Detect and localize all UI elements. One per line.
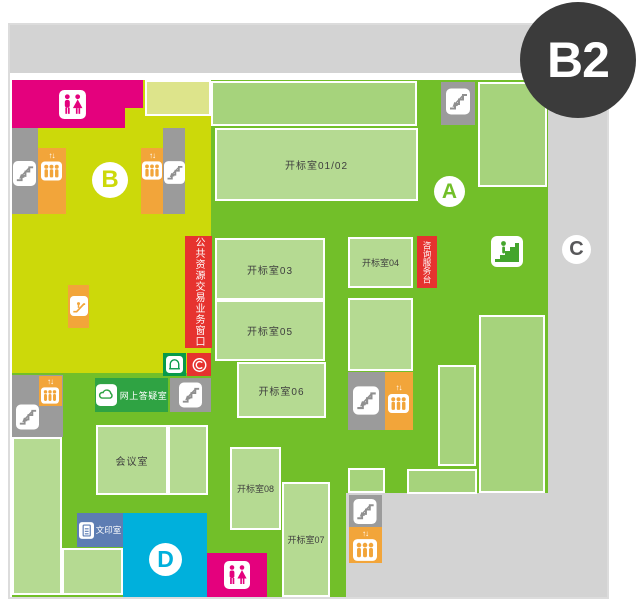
zone-letter: C xyxy=(569,238,583,261)
room-label: 开标室06 xyxy=(258,383,304,398)
elevator-arrows: ↑↓ xyxy=(49,152,55,160)
room-bid-04: 开标室04 xyxy=(348,237,413,288)
zone-marker-a: A xyxy=(434,176,465,207)
room-unlabeled-below-04 xyxy=(348,298,413,371)
zone-marker-d: D xyxy=(149,543,182,576)
kiosk-icon xyxy=(166,356,183,373)
room-unlabeled-below-print xyxy=(62,548,123,595)
elevator-icon: ↑↓ xyxy=(353,530,377,561)
room-unlabeled-top-left xyxy=(145,80,211,116)
room-print: 文印室 xyxy=(77,513,123,547)
info-desk-text: 咨询服务台 xyxy=(421,241,433,284)
online-qa-label: 网上答疑室 xyxy=(120,389,168,402)
room-bid-0102: 开标室01/02 xyxy=(215,128,418,201)
zone-marker-c: C xyxy=(562,235,591,264)
cert-block xyxy=(187,353,211,376)
room-online-qa: 网上答疑室 xyxy=(95,378,168,412)
room-unlabeled-right-of-meeting xyxy=(168,425,208,495)
zone-marker-b: B xyxy=(92,162,128,198)
elevator-arrows: ↑↓ xyxy=(362,530,368,538)
floor-badge: B2 xyxy=(520,2,636,118)
room-bid-05: 开标室05 xyxy=(215,300,325,361)
kiosk-block xyxy=(163,353,186,376)
room-bid-07: 开标室07 xyxy=(282,482,330,597)
service-window-sign: 公共资源交易业务窗口 xyxy=(185,236,212,348)
room-label: 开标室08 xyxy=(237,482,274,495)
room-label: 开标室07 xyxy=(287,533,324,546)
elevator-arrows: ↑↓ xyxy=(149,152,155,160)
stairs-icon xyxy=(179,382,202,408)
stairs-icon xyxy=(16,404,39,430)
room-label: 开标室01/02 xyxy=(285,157,348,172)
stairs-up-icon xyxy=(491,236,523,267)
online-qa-cloud-icon xyxy=(96,384,117,406)
floor-plan-b2: ↑↓ ↑↓ xyxy=(0,0,640,608)
floor-badge-text: B2 xyxy=(547,31,609,89)
room-bid-06: 开标室06 xyxy=(237,362,326,418)
document-icon xyxy=(79,522,94,539)
info-desk-sign: 咨询服务台 xyxy=(417,236,437,288)
room-label: 开标室05 xyxy=(247,323,293,338)
room-label: 开标室03 xyxy=(247,262,293,277)
stairs-icon xyxy=(164,160,185,185)
room-bid-08: 开标室08 xyxy=(230,447,281,530)
zone-letter: B xyxy=(101,166,118,194)
cert-logo-icon xyxy=(190,356,209,374)
stairs-icon xyxy=(353,386,379,415)
stairs-icon xyxy=(353,499,377,524)
escalator-icon xyxy=(70,296,88,316)
room-unlabeled-top-band xyxy=(211,81,417,126)
elevator-icon: ↑↓ xyxy=(41,152,62,181)
stairs-icon xyxy=(13,160,36,187)
room-unlabeled-right-4 xyxy=(407,469,477,494)
room-meeting: 会议室 xyxy=(96,425,168,495)
elevator-icon: ↑↓ xyxy=(41,378,59,404)
zone-letter: D xyxy=(157,546,174,573)
room-unlabeled-right-2 xyxy=(479,315,545,493)
bottom-right-concourse xyxy=(346,493,607,597)
stairs-icon xyxy=(446,88,470,115)
room-bid-03: 开标室03 xyxy=(215,238,325,300)
elevator-icon: ↑↓ xyxy=(142,152,162,180)
top-concourse xyxy=(10,25,607,73)
room-label: 会议室 xyxy=(116,453,149,468)
elevator-icon: ↑↓ xyxy=(388,384,409,414)
elevator-arrows: ↑↓ xyxy=(396,384,402,392)
service-window-text: 公共资源交易业务窗口 xyxy=(191,237,206,347)
zone-letter: A xyxy=(442,180,457,204)
room-unlabeled-right-3 xyxy=(348,468,385,493)
elevator-arrows: ↑↓ xyxy=(47,378,53,386)
room-label: 开标室04 xyxy=(362,256,399,269)
room-unlabeled-right-1 xyxy=(438,365,476,466)
restroom-icon xyxy=(59,90,86,119)
restroom-icon xyxy=(224,561,250,589)
room-unlabeled-left-column xyxy=(12,437,62,595)
restroom-top-block-ext xyxy=(125,80,143,108)
print-room-label: 文印室 xyxy=(96,524,122,536)
